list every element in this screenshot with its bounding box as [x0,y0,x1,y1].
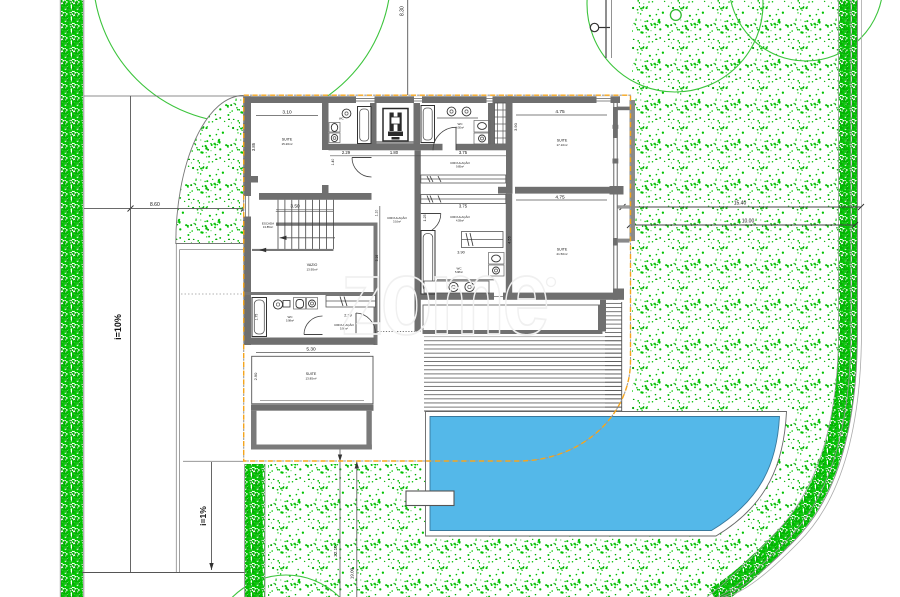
svg-text:3.75: 3.75 [459,204,468,209]
svg-text:9.85m²: 9.85m² [456,165,464,169]
svg-text:5.98m²: 5.98m² [286,319,294,323]
svg-text:2.29: 2.29 [342,150,351,155]
svg-text:SUITE: SUITE [282,138,293,142]
svg-text:WC: WC [458,122,464,126]
svg-text:3.85: 3.85 [251,142,256,151]
svg-text:1.25: 1.25 [423,215,427,222]
svg-text:3.50: 3.50 [290,204,300,210]
svg-text:3.10: 3.10 [282,110,292,116]
svg-text:10.00: 10.00 [742,219,755,225]
svg-text:i=1%: i=1% [198,506,208,526]
svg-text:8.30: 8.30 [400,6,406,16]
svg-text:3.75: 3.75 [459,150,468,155]
svg-text:1.40: 1.40 [331,159,335,166]
svg-text:i=10%: i=10% [113,314,123,340]
svg-text:17.10m²: 17.10m² [556,143,567,147]
svg-text:4.59m²: 4.59m² [456,219,464,223]
svg-text:15.20m²: 15.20m² [281,142,292,146]
svg-text:CIRCULAÇÃO: CIRCULAÇÃO [450,214,470,219]
svg-text:2.90: 2.90 [253,372,258,381]
svg-text:zome: zome [341,236,547,358]
svg-text:VAZIO: VAZIO [307,263,318,267]
svg-text:32.10: 32.10 [333,545,338,557]
svg-text:3.16m²: 3.16m² [393,220,401,224]
svg-text:13.95m²: 13.95m² [306,268,317,272]
svg-text:13.85m²: 13.85m² [305,377,316,381]
svg-text:SUITE: SUITE [557,139,568,143]
svg-text:1.75: 1.75 [255,314,259,321]
svg-text:4.75: 4.75 [555,195,565,201]
svg-text:19.00: 19.00 [350,567,355,579]
svg-text:3.90: 3.90 [513,122,518,131]
svg-text:8.60: 8.60 [150,202,160,208]
svg-text:WC: WC [339,117,344,121]
svg-text:15.40: 15.40 [734,201,747,207]
svg-text:CIRCULAÇÃO: CIRCULAÇÃO [450,160,470,165]
svg-text:4.50m²: 4.50m² [456,126,464,130]
svg-text:5.30: 5.30 [306,347,316,353]
svg-text:21.50m²: 21.50m² [556,252,567,256]
svg-text:1.80: 1.80 [390,150,399,155]
svg-text:SUITE: SUITE [306,372,317,376]
svg-text:CIRCULAÇÃO: CIRCULAÇÃO [387,215,407,220]
svg-text:SUITE: SUITE [557,248,568,252]
svg-text:WC: WC [288,315,294,319]
svg-text:13.85m²: 13.85m² [263,225,273,229]
svg-text:4.75: 4.75 [555,109,565,115]
svg-text:1.10: 1.10 [375,210,379,217]
